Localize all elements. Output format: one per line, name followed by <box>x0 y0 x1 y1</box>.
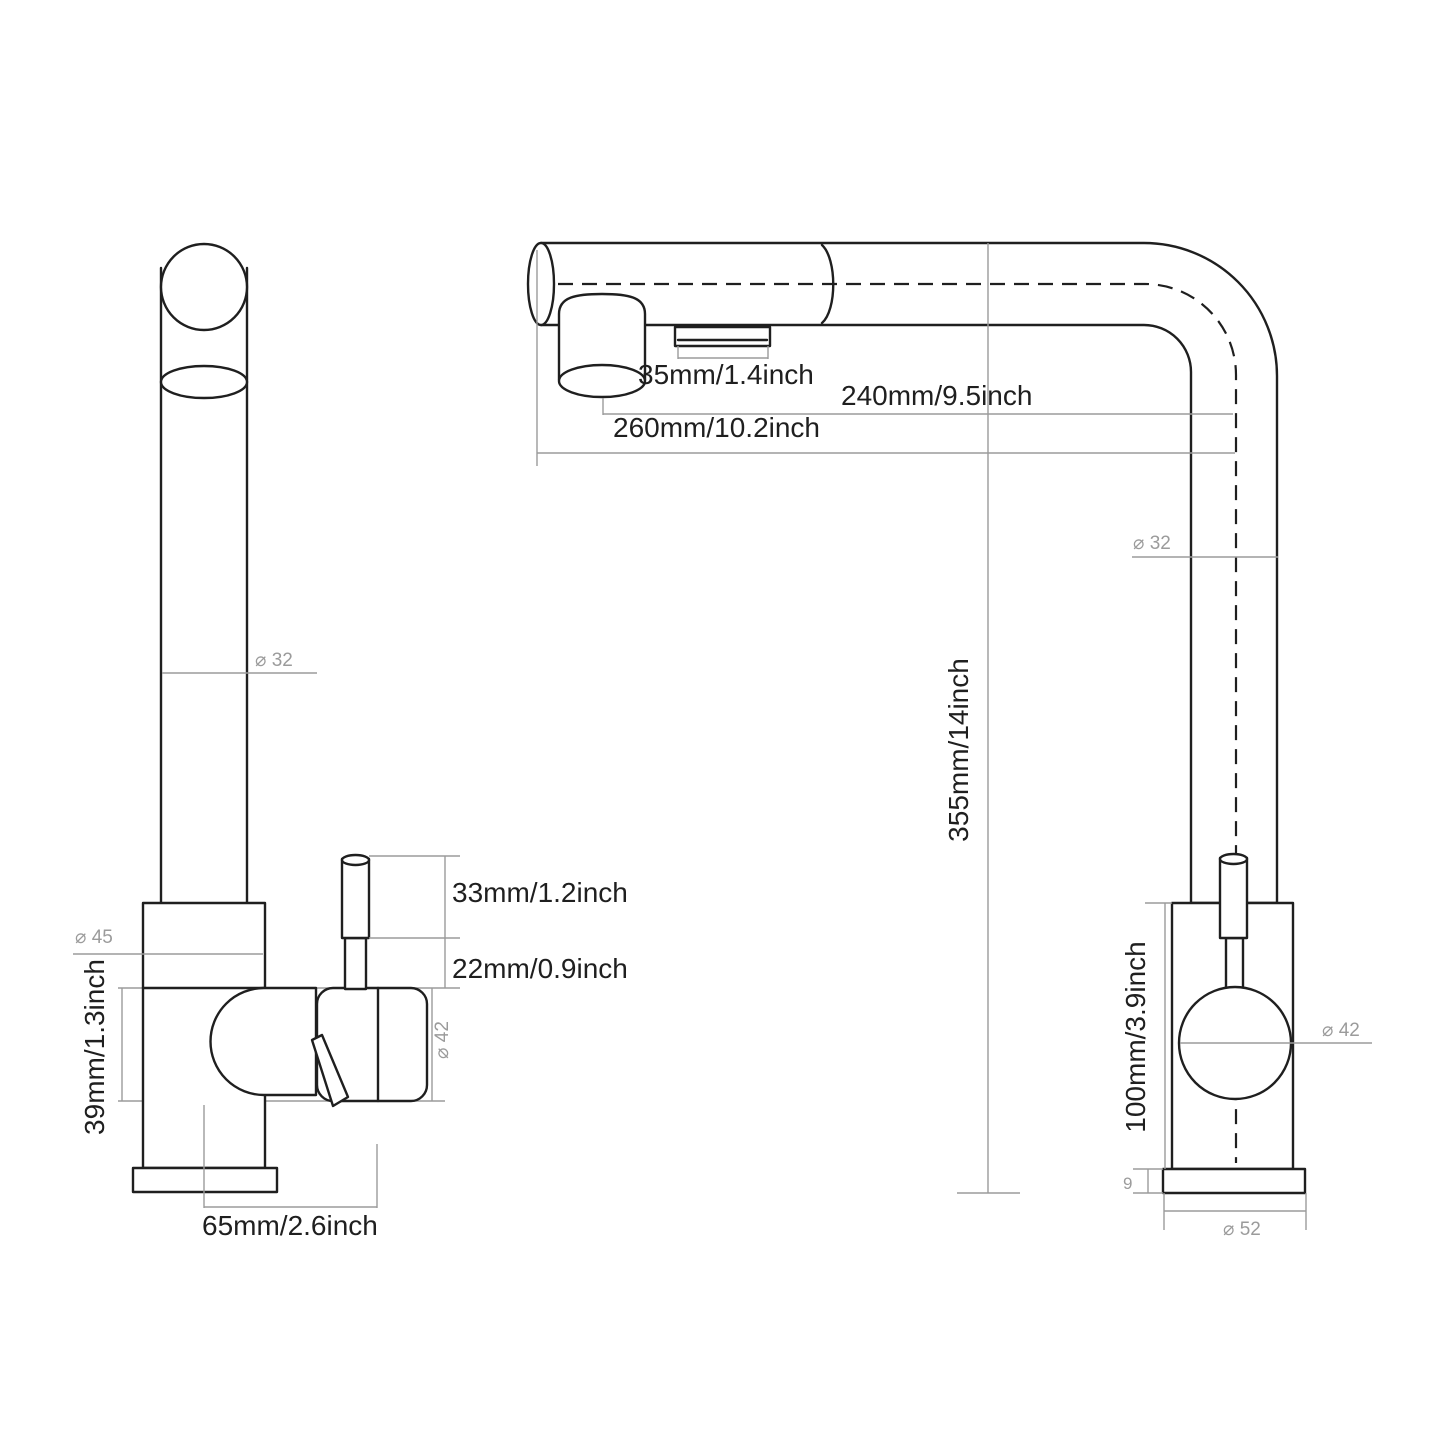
label-spout-reach-to-center: 240mm/9.5inch <box>841 380 1032 411</box>
base-plate-side <box>133 1168 277 1192</box>
handle-stem-side <box>345 938 366 989</box>
label-base-plate-thickness: 9 <box>1123 1174 1132 1193</box>
label-body-height: 100mm/3.9inch <box>1120 941 1151 1132</box>
label-collar-diameter: ⌀ 45 <box>75 927 113 948</box>
label-base-plate-diameter: ⌀ 52 <box>1223 1219 1261 1240</box>
base-plate-front <box>1163 1169 1305 1193</box>
handle-grip-side <box>342 859 369 938</box>
side-view-drawing <box>133 244 427 1192</box>
handle-grip-top-ellipse-front <box>1220 854 1247 864</box>
spout-end-cap-ellipse <box>528 243 554 325</box>
label-valve-body-height: 39mm/1.3inch <box>79 959 110 1135</box>
label-cartridge-diameter-side: ⌀ 42 <box>432 1021 453 1059</box>
faucet-dimension-diagram: 35mm/1.4inch 240mm/9.5inch 260mm/10.2inc… <box>0 0 1445 1445</box>
spray-toggle-button <box>675 327 770 346</box>
spout-pipe-front <box>541 243 1277 903</box>
label-spout-height: 355mm/14inch <box>943 658 974 842</box>
label-spout-diameter-front: ⌀ 32 <box>1133 533 1171 554</box>
handle-grip-top-ellipse <box>342 855 369 865</box>
label-cartridge-diameter-front: ⌀ 42 <box>1322 1020 1360 1041</box>
dimension-labels: 35mm/1.4inch 240mm/9.5inch 260mm/10.2inc… <box>75 359 1360 1241</box>
label-handle-stem-length: 22mm/0.9inch <box>452 953 628 984</box>
spout-joint-ellipse <box>161 366 247 398</box>
handle-grip-front <box>1220 858 1247 938</box>
diagram-canvas: 35mm/1.4inch 240mm/9.5inch 260mm/10.2inc… <box>0 0 1445 1445</box>
label-spout-reach-total: 260mm/10.2inch <box>613 412 820 443</box>
spray-nozzle-tip-ellipse <box>559 365 645 397</box>
label-spout-diameter-side: ⌀ 32 <box>255 650 293 671</box>
valve-housing-dome-side <box>211 988 317 1095</box>
handle-stem-front <box>1226 938 1243 994</box>
label-spray-button-width: 35mm/1.4inch <box>638 359 814 390</box>
spout-opening-circle <box>161 244 247 330</box>
label-handle-offset: 65mm/2.6inch <box>202 1210 378 1241</box>
label-handle-grip-length: 33mm/1.2inch <box>452 877 628 908</box>
